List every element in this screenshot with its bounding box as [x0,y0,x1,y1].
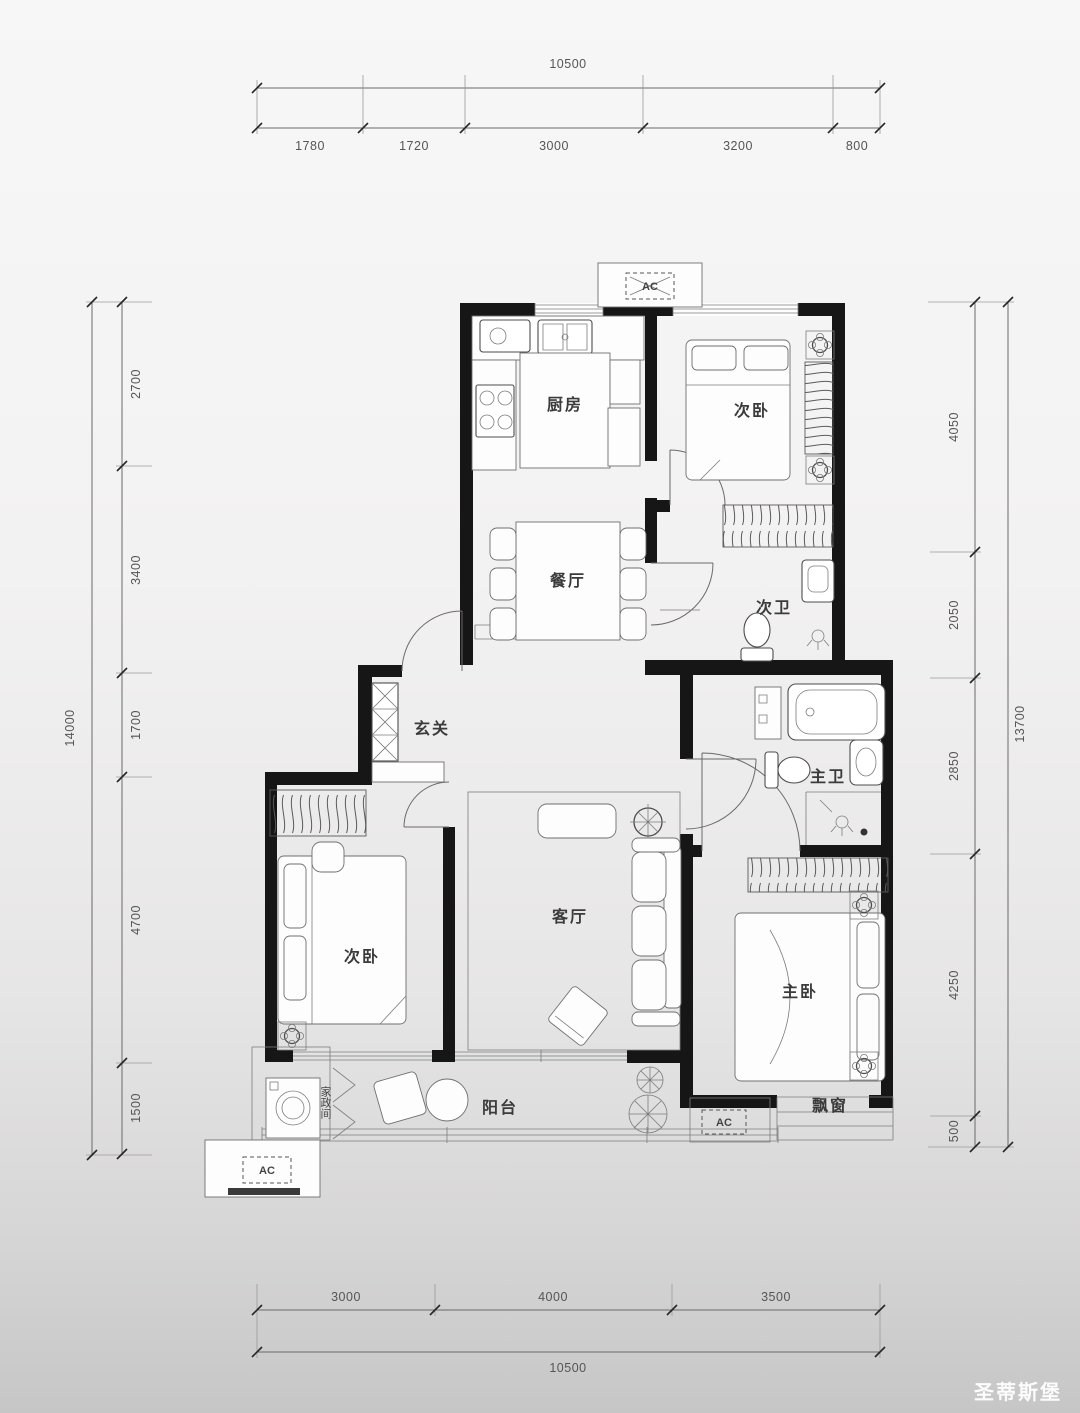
dimension-chain-top: 10500 1780 1720 3000 3200 800 [252,57,885,153]
wardrobe [805,362,833,454]
room-label-bay-window: 飘窗 [812,1096,848,1115]
bath-second-door-arc [651,563,713,625]
plant [629,1067,667,1133]
dimension-chain-right: 4050 2050 2850 4250 500 13700 [928,297,1027,1152]
fridge [610,360,640,404]
room-bedroom-top: 次卧 [686,331,834,484]
room-label-bath-second: 次卫 [756,598,792,617]
dim-top-seg4: 3200 [723,139,753,153]
nightstand-plant [278,1022,306,1050]
room-label-bedroom-left: 次卧 [344,947,380,966]
dim-right-seg3: 2850 [947,751,961,781]
dim-right-seg4: 4250 [947,970,961,1000]
room-dining: 餐厅 [490,522,646,640]
dim-bottom-seg3: 3500 [761,1290,791,1304]
ac-unit-top: AC [598,263,702,307]
dim-right-seg1: 4050 [947,412,961,442]
toilet [765,752,810,788]
window-bedroom-left-balcony [293,1052,432,1060]
floorplan-drawing: 10500 1780 1720 3000 3200 800 3000 4000 … [0,0,1080,1413]
nightstand-plant [806,331,834,359]
floorplan-page: 10500 1780 1720 3000 3200 800 3000 4000 … [0,0,1080,1413]
tv-bench [538,804,616,838]
dim-left-seg1: 2700 [129,369,143,399]
kitchen-stove [476,385,514,437]
ac-label: AC [716,1117,732,1129]
balcony-chair [373,1071,427,1125]
dim-left-seg4: 4700 [129,905,143,935]
shower [806,792,881,845]
entry-door-arc [402,611,462,671]
brand-watermark: 圣蒂斯堡 [974,1380,1062,1404]
sink [850,740,883,785]
room-living: 客厅 [468,792,681,1050]
nightstand-plant [806,456,834,484]
folding-door [333,1068,355,1139]
room-label-kitchen: 厨房 [547,395,583,414]
sofa [632,838,681,1026]
dimension-chain-left: 14000 2700 3400 1700 4700 1500 [63,297,152,1160]
room-balcony: 阳台 家政间 [252,1047,667,1140]
suite-corridor-door-arc [686,759,756,829]
dim-left-total: 14000 [63,709,77,746]
room-label-bedroom-top: 次卧 [734,401,770,420]
dim-bottom-total: 10500 [549,1361,586,1375]
ac-label: AC [259,1165,275,1177]
washing-machine [266,1078,320,1138]
dim-left-seg5: 1500 [129,1093,143,1123]
ceiling-light [630,804,666,840]
dim-left-seg3: 1700 [129,710,143,740]
bedside-chair [312,842,344,872]
dim-top-seg3: 3000 [539,139,569,153]
bedroom-left-door-arc [404,782,449,827]
room-label-dining: 餐厅 [549,571,586,590]
room-label-bedroom-master: 主卧 [782,982,818,1001]
dim-top-total: 10500 [549,57,586,71]
dim-bottom-seg1: 3000 [331,1290,361,1304]
dim-left-seg2: 3400 [129,555,143,585]
room-label-balcony: 阳台 [482,1098,518,1117]
ac-label: AC [642,281,658,293]
room-bedroom-master: 主卧 [735,858,888,1081]
dim-bottom-seg2: 4000 [538,1290,568,1304]
room-bedroom-left: 次卧 [270,790,406,1050]
room-label-living: 客厅 [552,907,588,926]
dim-right-seg5: 500 [947,1120,961,1142]
room-label-bath-master: 主卫 [810,767,846,786]
room-foyer: 玄关 [372,683,450,782]
shoe-cabinet [372,762,444,782]
room-label-laundry: 家政间 [319,1085,332,1120]
window-balcony-front [262,1127,778,1143]
dim-right-seg2: 2050 [947,600,961,630]
ac-unit-bottom-left: AC [205,1140,320,1197]
shower-head [812,630,824,642]
lounge-chair [547,985,609,1047]
dim-right-total: 13700 [1013,705,1027,742]
bathtub [788,684,885,740]
balcony-table [426,1079,468,1121]
dimension-chain-bottom: 3000 4000 3500 10500 [252,1284,885,1375]
dim-top-seg2: 1720 [399,139,429,153]
window-living-balcony [455,1050,627,1062]
room-bath-second: 次卫 [660,505,834,661]
dim-top-seg1: 1780 [295,139,325,153]
wardrobe [748,858,888,892]
room-bath-master: 主卫 [755,684,885,845]
window-kitchen-top [535,303,603,316]
dim-top-seg5: 800 [846,139,868,153]
kitchen-sink [538,320,592,354]
wardrobe [270,790,366,836]
room-label-foyer: 玄关 [414,719,450,738]
toilet [744,613,770,647]
closet [723,505,833,547]
